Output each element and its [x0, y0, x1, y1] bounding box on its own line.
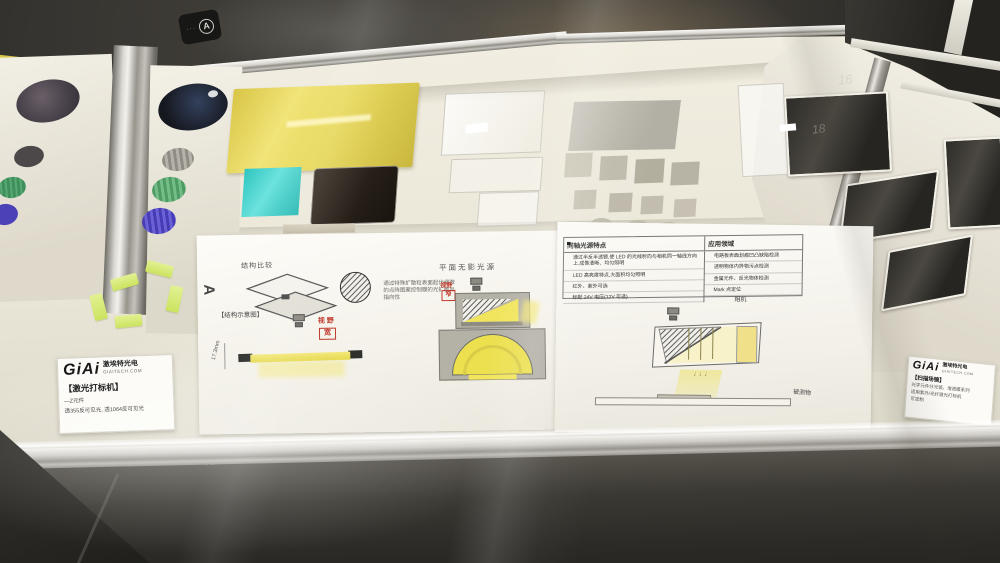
card-title: 【激光打标机】: [64, 379, 168, 395]
features-list: 通过半反半透镜,使 LED 的光线射向与相机同一轴线方向上,成像清晰、均匀照明 …: [563, 251, 704, 304]
dark-filter-sample: [310, 165, 399, 225]
beige-bar-sample: [283, 223, 355, 233]
clear-glass-sample: [441, 90, 545, 156]
square-sample: [599, 155, 628, 180]
camera-label: 相机: [734, 294, 746, 303]
square-sample: [673, 199, 696, 218]
dark-glass-window: [784, 91, 892, 176]
schematic-caption: 【结构示意图】: [218, 309, 264, 320]
application-item: Mark 点定位: [704, 284, 801, 296]
flat-light-title: 平面无影光源: [439, 261, 496, 273]
sticker-dots: ···: [186, 24, 197, 33]
square-sample: [670, 161, 700, 185]
shelf-number: 18: [811, 121, 826, 137]
feature-item: 标配 24V 电压(12V 可选): [563, 291, 703, 304]
features-title: 同轴光源特点: [564, 236, 704, 252]
spec-table: 同轴光源特点 应用领域 通过半反半透镜,使 LED 的光线射向与相机同一轴线方向…: [562, 234, 803, 299]
datasheet-coaxial-light: 同轴光源特点 应用领域 通过半反半透镜,使 LED 的光线射向与相机同一轴线方向…: [555, 222, 874, 436]
dimension-line: [224, 343, 225, 369]
paper-edge-letter: A: [200, 284, 217, 295]
fov-wide-box: 宽: [319, 328, 336, 340]
brand-site: GIAITECH.COM: [103, 368, 142, 374]
structure-diagram: [235, 269, 386, 335]
trapezoid-light-diagram: [454, 291, 531, 330]
gray-glass-sample: [568, 100, 681, 151]
structure-compare-title: 结构比较: [241, 261, 273, 271]
dark-glass-window: [944, 137, 1000, 230]
brand-card-right: GiAi 激埃特光电 GIAITECH.COM 【扫描场镜】 光学元件分光镜、增…: [904, 355, 996, 426]
square-sample: [634, 158, 665, 183]
square-sample: [573, 190, 596, 210]
light-glow: [520, 300, 539, 324]
brand-card-left: GiAi 激埃特光电 GIAITECH.COM 【激光打标机】 —Z元件 透35…: [57, 354, 176, 434]
clear-glass-sample: [477, 191, 540, 227]
cyan-filter-sample: [241, 167, 301, 217]
shelf-number: 16: [837, 71, 853, 87]
light-glow: [258, 361, 344, 378]
base-marking: - ~: [205, 460, 215, 469]
square-sample: [608, 193, 632, 213]
fov-label: 视野: [440, 280, 452, 289]
applications-title: 应用领域: [704, 235, 802, 250]
applications-list: 电路板表面划痕凹凸缺陷检测 透明物体内异物污点检测 金属元件、反光物体检测 Ma…: [703, 250, 802, 302]
camera-icon: [469, 278, 483, 292]
square-sample: [564, 152, 593, 177]
fov-label: 视野: [318, 316, 336, 326]
object-label: 被测物: [793, 386, 812, 396]
brand-logo: GiAi: [912, 360, 939, 374]
yellow-glass-sample: [226, 83, 419, 174]
dimension-label: 17.3mm: [211, 340, 222, 361]
display-case-photo: ··· A 16 18: [0, 0, 1000, 563]
object-plate: [595, 397, 791, 406]
camera-icon: [292, 314, 306, 328]
reflection-spot: [780, 123, 797, 131]
datasheet-flat-light: A 结构比较 通过特殊扩散粒表面起伏细微的点阵图案控制膜的光扩散与指向性 【结构…: [197, 230, 567, 434]
clear-glass-sample: [449, 157, 544, 193]
brand-logo: GiAi: [63, 362, 100, 379]
card-line: 透355反可见光, 透1064反可见光: [64, 403, 168, 415]
dome-light-diagram: [438, 327, 547, 383]
feature-item: 通过半反半透镜,使 LED 的光线射向与相机同一轴线方向上,成像清晰、均匀照明: [564, 251, 704, 270]
square-sample: [640, 196, 663, 215]
sticker-letter: A: [198, 17, 215, 34]
coaxial-light-diagram: [647, 317, 766, 371]
